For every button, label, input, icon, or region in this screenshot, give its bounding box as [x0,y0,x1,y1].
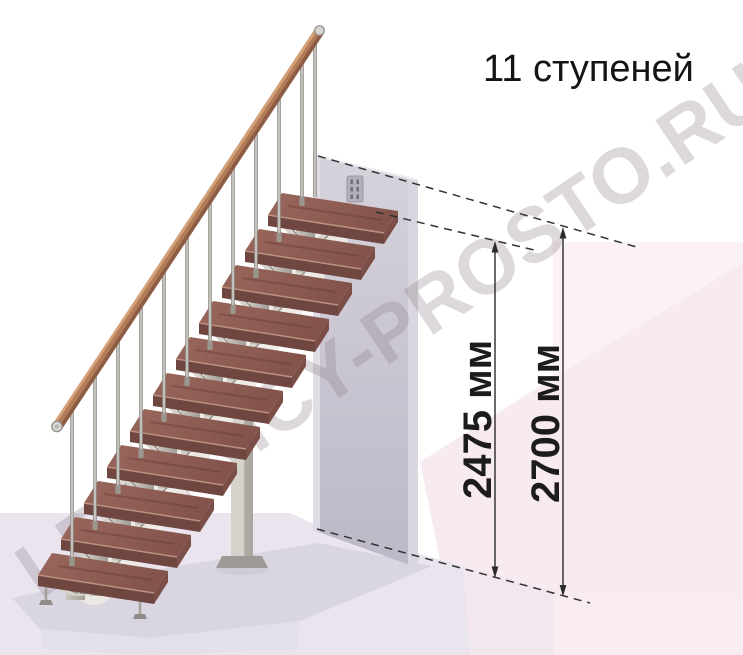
baluster-base-sleeve [138,449,143,458]
handrail-bottom-cap-center [55,425,59,429]
baluster-base-sleeve [299,197,304,206]
baluster-base-sleeve [115,485,120,494]
wall-right-edge [408,178,418,568]
staircase-illustration: LESTNICY-PROSTO.RU [0,0,743,655]
baluster-base-sleeve [276,233,281,242]
wall-mount-plate [347,176,363,202]
page-title: 11 ступеней [483,48,694,90]
baluster-base-sleeve [161,413,166,422]
leg-foot [39,600,53,605]
leg-foot [133,614,147,619]
pink-floor-strip [553,598,743,655]
baluster-base-sleeve [207,341,212,350]
staircase-diagram: LESTNICY-PROSTO.RU [0,0,743,655]
stair-height-label: 2475 мм [456,340,500,499]
baluster-base-sleeve [230,305,235,314]
baluster-base-sleeve [253,269,258,278]
baluster-base-sleeve [184,377,189,386]
baluster-base-sleeve [69,557,74,566]
baluster-base-sleeve [92,521,97,530]
support-column-base-plate [216,556,268,568]
ceiling-height-label: 2700 мм [524,344,568,503]
handrail-top-cap [315,26,325,36]
